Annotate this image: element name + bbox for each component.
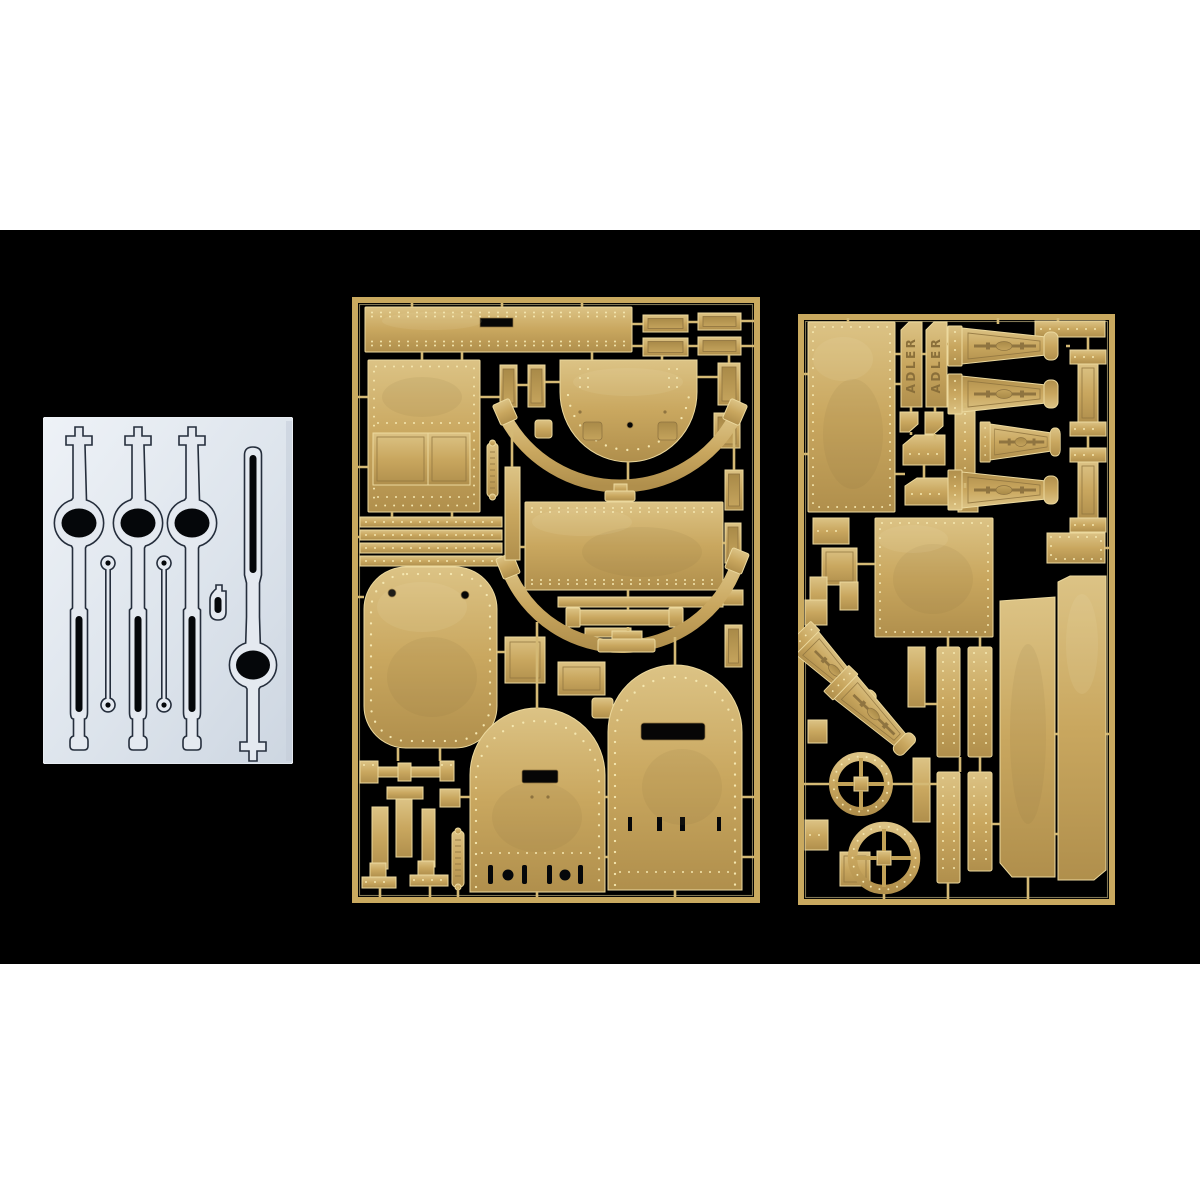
large-riveted-panel [525, 502, 723, 590]
fret-a [352, 297, 760, 903]
oval-hull-plate [364, 567, 497, 748]
arched-door-plate-1 [470, 708, 605, 892]
wheel-hub-ring-1 [834, 757, 889, 812]
riveted-bar-mid-right [1047, 533, 1105, 563]
adler-nameplate-1: ADLER [901, 322, 922, 407]
adler-nameplate-text-2: ADLER [929, 337, 943, 394]
etched-maker-tag-lower [452, 828, 464, 890]
adler-nameplate-2: ADLER [926, 322, 947, 407]
film-sheet [43, 417, 293, 764]
square-riveted-plate [875, 518, 993, 637]
adler-nameplate-text-1: ADLER [904, 337, 918, 394]
large-riveted-plate [808, 322, 895, 512]
small-bracket-parts-cluster [360, 761, 460, 888]
arched-door-plate-2 [608, 665, 742, 890]
product-photo: ADLER ADLER [0, 0, 1200, 1200]
wheel-hub-ring-2 [853, 827, 916, 890]
hatch-plate-with-doors [368, 360, 480, 512]
vent-plates-grid [643, 313, 741, 356]
fret-b: ADLER ADLER [798, 314, 1115, 905]
etched-maker-tag-upper [487, 440, 498, 500]
step-brackets [903, 435, 950, 505]
riveted-top-strip-plate [365, 307, 632, 352]
long-side-panels [1000, 576, 1106, 880]
narrow-riveted-strips [360, 517, 502, 566]
turret-roof-dome-plate [560, 360, 697, 462]
sheet-edge-shade [286, 421, 292, 761]
nameplate-backing-strips [900, 412, 943, 434]
